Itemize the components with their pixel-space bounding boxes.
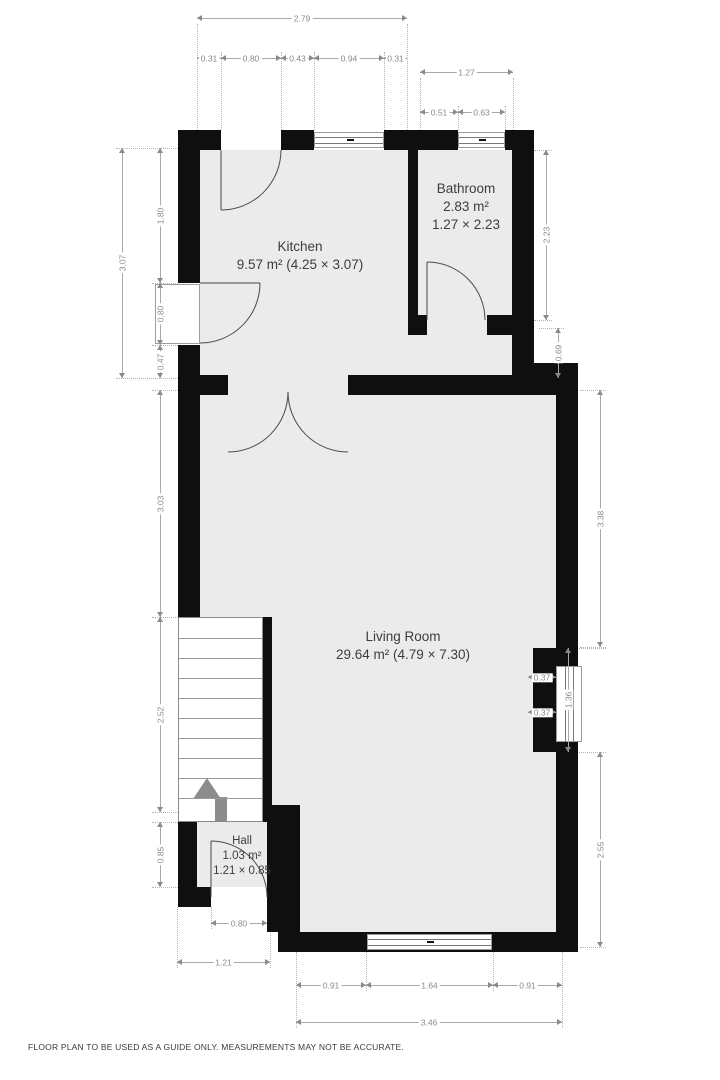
glazing-line [459, 137, 504, 138]
dimension-label: 1.21 [213, 958, 234, 967]
dimension: 2.55 [600, 752, 601, 947]
dimension-label: 0.51 [429, 108, 450, 117]
dimension: 0.37 [528, 712, 556, 713]
dimension-arrow [314, 55, 319, 61]
dimension-label: 0.91 [321, 981, 342, 990]
extension-line [281, 52, 282, 130]
glazing-line [315, 143, 383, 144]
kitchen-label: Kitchen 9.57 m² (4.25 × 3.07) [237, 238, 363, 274]
dimension-arrow [157, 390, 163, 395]
dimension-label: 0.80 [241, 54, 262, 63]
dimension-label: 3.07 [118, 253, 127, 274]
stair-tread [179, 638, 262, 639]
dimension: 3.07 [122, 148, 123, 378]
dimension-label: 0.47 [156, 351, 165, 372]
dimension: 0.37 [528, 677, 556, 678]
dimension-label: 2.23 [542, 225, 551, 246]
floor-plan: Kitchen 9.57 m² (4.25 × 3.07) Bathroom 2… [0, 0, 720, 1080]
extension-line [152, 887, 178, 888]
dimension: 1.80 [160, 148, 161, 283]
dimension-label: 0.85 [156, 844, 165, 865]
extension-line [562, 952, 563, 1028]
stairs-up-arrow-stem [215, 797, 227, 821]
wall [384, 130, 418, 150]
bathroom-size: 1.27 × 2.23 [432, 216, 500, 234]
glazing-dash [347, 139, 354, 141]
dimension: 3.46 [296, 1022, 562, 1023]
kitchen-area: 9.57 m² (4.25 × 3.07) [237, 256, 363, 274]
extension-line [152, 345, 178, 346]
extension-line [152, 822, 178, 823]
dimension-arrow [157, 345, 163, 350]
dimension: 0.31 [197, 58, 221, 59]
dimension-label: 0.37 [532, 708, 553, 717]
dimension: 0.91 [296, 985, 366, 986]
extension-line [221, 52, 222, 130]
dimension-arrow [458, 109, 463, 115]
dimension-arrow [281, 55, 286, 61]
bathroom-label: Bathroom 2.83 m² 1.27 × 2.23 [432, 180, 500, 233]
extension-line [116, 378, 178, 379]
hall-bottom-wall-left [178, 887, 211, 907]
dimension: 0.69 [558, 328, 559, 378]
dimension-label: 0.94 [339, 54, 360, 63]
dimension: 1.27 [420, 72, 513, 73]
glazing-line [368, 945, 491, 946]
stair-tread [179, 718, 262, 719]
dimension-arrow [157, 882, 163, 887]
dimension-arrow [565, 747, 571, 752]
living-room-floor-left [200, 375, 272, 617]
dimension: 0.47 [160, 345, 161, 378]
stair-tread [179, 678, 262, 679]
dimension-label: 1.80 [156, 205, 165, 226]
extension-line [420, 78, 421, 130]
hall-area: 1.03 m² [213, 849, 271, 864]
dimension-arrow [597, 942, 603, 947]
dimension-arrow [508, 69, 513, 75]
stair-tread [179, 738, 262, 739]
dimension: 0.43 [281, 58, 314, 59]
dimension-arrow [555, 373, 561, 378]
living-room-label: Living Room 29.64 m² (4.79 × 7.30) [336, 628, 470, 664]
living-room-window-bottom [367, 934, 492, 950]
dimension-arrow [500, 109, 505, 115]
stair-tread [179, 798, 262, 799]
dimension-label: 0.43 [287, 54, 308, 63]
extension-line [513, 78, 514, 132]
disclaimer-text: FLOOR PLAN TO BE USED AS A GUIDE ONLY. M… [28, 1042, 404, 1052]
dimension-arrow [119, 148, 125, 153]
right-wall-upper [556, 378, 578, 650]
dimension-arrow [262, 920, 267, 926]
dimension-arrow [296, 1019, 301, 1025]
dimension-label: 0.31 [199, 54, 220, 63]
bathroom-bottom-wall-left [408, 315, 427, 335]
dimension-arrow [565, 648, 571, 653]
extension-line [505, 106, 506, 130]
dimension: 0.85 [160, 822, 161, 887]
dimension-label: 1.64 [419, 981, 440, 990]
hall-label: Hall 1.03 m² 1.21 × 0.85 [213, 834, 271, 879]
glazing-line [315, 137, 383, 138]
dimension-label: 0.91 [517, 981, 538, 990]
dimension-arrow [557, 1019, 562, 1025]
stairs-up-arrow-icon [193, 778, 221, 799]
dimension: 0.51 [420, 112, 458, 113]
glazing-line [459, 143, 504, 144]
extension-line [384, 52, 385, 130]
stair-tread [179, 758, 262, 759]
living-room-area: 29.64 m² (4.79 × 7.30) [336, 646, 470, 664]
extension-line [580, 947, 606, 948]
dimension: 3.38 [600, 390, 601, 647]
dimension-arrow [157, 148, 163, 153]
dimension: 1.64 [366, 985, 493, 986]
dimension-arrow [557, 982, 562, 988]
dimension-arrow [157, 283, 163, 288]
living-room-name: Living Room [336, 628, 470, 646]
wall [281, 130, 314, 150]
dimension: 0.31 [384, 58, 407, 59]
dimension-arrow [119, 373, 125, 378]
dimension-label: 0.80 [229, 919, 250, 928]
extension-line [314, 52, 315, 130]
dimension-arrow [597, 642, 603, 647]
dimension-label: 0.69 [554, 343, 563, 364]
dimension: 3.03 [160, 390, 161, 617]
dimension-label: 0.37 [532, 673, 553, 682]
bathroom-right-wall [512, 130, 534, 380]
dimension-arrow [157, 807, 163, 812]
kitchen-living-divider-left [178, 375, 228, 395]
extension-line [152, 390, 178, 391]
dimension-arrow [197, 15, 202, 21]
dimension: 0.63 [458, 112, 505, 113]
dimension-arrow [493, 982, 498, 988]
bathroom-window [458, 132, 505, 148]
dimension: 0.91 [493, 985, 562, 986]
extension-line [152, 812, 178, 813]
dimension: 0.94 [314, 58, 384, 59]
dimension: 2.23 [546, 150, 547, 320]
hall-name: Hall [213, 834, 271, 849]
dimension-arrow [157, 822, 163, 827]
dimension: 2.52 [160, 617, 161, 812]
extension-line [296, 952, 297, 1028]
dimension-label: 2.52 [156, 704, 165, 725]
dimension-arrow [366, 982, 371, 988]
dimension-arrow [420, 109, 425, 115]
hall-size: 1.21 × 0.85 [213, 864, 271, 879]
kitchen-name: Kitchen [237, 238, 363, 256]
right-wall-lower [556, 750, 578, 952]
dimension-arrow [211, 920, 216, 926]
dimension-label: 0.80 [156, 304, 165, 325]
hall-right-wall [267, 805, 300, 932]
dimension: 0.80 [160, 283, 161, 345]
dimension-arrow [597, 390, 603, 395]
dimension-arrow [555, 328, 561, 333]
kitchen-bathroom-divider-wall [408, 150, 418, 315]
dimension-arrow [157, 617, 163, 622]
dimension-arrow [221, 55, 226, 61]
bathroom-bottom-wall-right [487, 315, 512, 335]
glazing-line [368, 939, 491, 940]
kitchen-window [314, 132, 384, 148]
stair-tread [179, 658, 262, 659]
dimension-arrow [543, 315, 549, 320]
dimension-arrow [265, 959, 270, 965]
dimension-arrow [543, 150, 549, 155]
dimension: 1.21 [177, 962, 270, 963]
wall [418, 130, 458, 150]
dimension-label: 1.27 [456, 68, 477, 77]
glazing-dash [427, 941, 434, 943]
staircase [178, 617, 263, 822]
dimension-arrow [402, 15, 407, 21]
stairs-side-wall [263, 617, 272, 822]
dimension-label: 0.31 [385, 54, 406, 63]
extension-line [407, 24, 408, 130]
dimension-arrow [597, 752, 603, 757]
bathroom-area: 2.83 m² [432, 198, 500, 216]
glazing-dash [479, 139, 486, 141]
stair-tread [179, 778, 262, 779]
dimension-arrow [296, 982, 301, 988]
dimension-arrow [420, 69, 425, 75]
dimension-arrow [157, 373, 163, 378]
dimension: 1.36 [568, 648, 569, 752]
dimension-label: 1.36 [564, 690, 573, 711]
wall [178, 130, 200, 283]
extension-line [152, 617, 178, 618]
extension-line [534, 320, 552, 321]
dimension-label: 2.55 [596, 839, 605, 860]
dimension: 2.79 [197, 18, 407, 19]
bathroom-name: Bathroom [432, 180, 500, 198]
dimension-label: 2.79 [292, 14, 313, 23]
dimension: 0.80 [221, 58, 281, 59]
dimension-arrow [177, 959, 182, 965]
dimension-label: 0.63 [471, 108, 492, 117]
dimension-label: 3.46 [419, 1018, 440, 1027]
dimension: 0.80 [211, 923, 267, 924]
extension-line [116, 148, 178, 149]
extension-line [197, 24, 198, 130]
dimension-label: 3.03 [156, 493, 165, 514]
kitchen-living-divider-right [348, 375, 557, 395]
stair-tread [179, 698, 262, 699]
dimension-label: 3.38 [596, 508, 605, 529]
